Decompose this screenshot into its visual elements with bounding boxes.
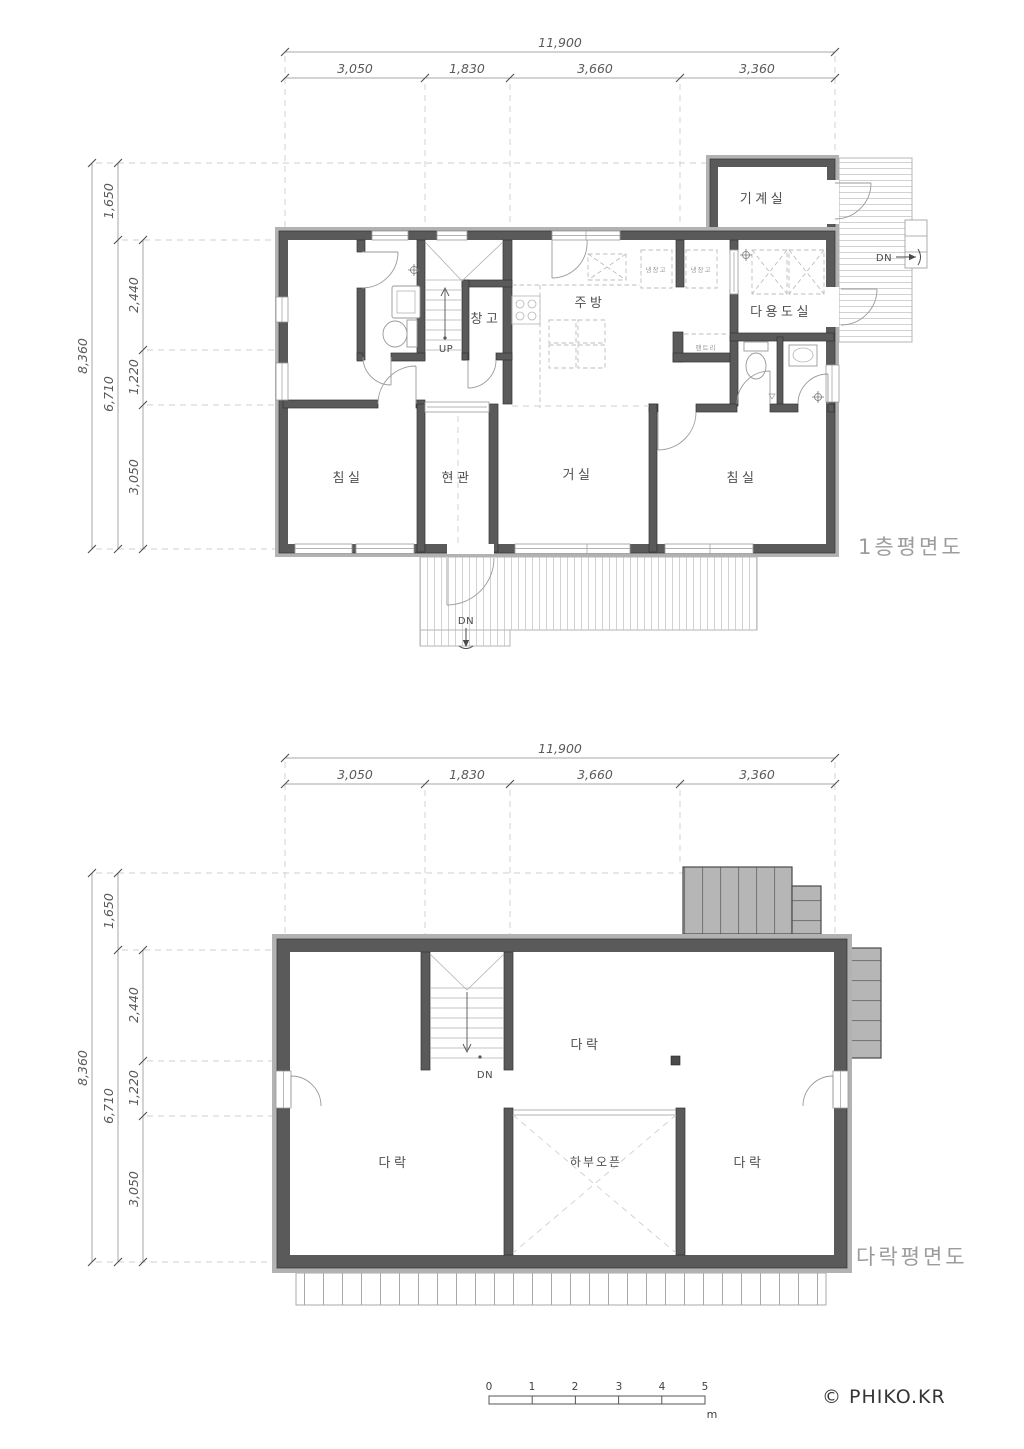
dim-left-upper-attic: 1,650 xyxy=(101,893,116,929)
attic-center-label: 다락 xyxy=(571,1038,602,1053)
floorplan-drawing: DN DN 기계실 xyxy=(0,0,1024,1449)
kitchen-label: 주방 xyxy=(575,296,606,311)
dim-total-width-attic: 11,900 xyxy=(538,741,582,756)
dim-left-attic-1: 1,220 xyxy=(126,1070,141,1106)
fridge-right-label: 냉장고 xyxy=(691,265,712,274)
dimensions-left-f1: 8,360 1,650 6,710 2,440 1,220 3,050 xyxy=(75,159,147,553)
stair-up-label: UP xyxy=(439,344,453,355)
porch-down-label: DN xyxy=(458,616,474,627)
credit-label: © PHIKO.KR xyxy=(822,1386,946,1408)
dim-seg-f1-3: 3,360 xyxy=(739,61,775,76)
attic-title: 다락평면도 xyxy=(856,1245,968,1269)
dim-seg-attic-3: 3,360 xyxy=(739,767,775,782)
scale-tick-0: 0 xyxy=(486,1381,493,1393)
dim-seg-attic-2: 3,660 xyxy=(577,767,613,782)
living-room-label: 거실 xyxy=(563,468,594,483)
open-below-label: 하부오픈 xyxy=(570,1155,622,1169)
dim-seg-attic-1: 1,830 xyxy=(449,767,485,782)
entrance-label: 현관 xyxy=(442,471,473,486)
dim-left-mid-f1: 6,710 xyxy=(101,376,116,412)
scale-unit-label: m xyxy=(707,1408,718,1421)
drawing-sheet: DN DN 기계실 xyxy=(0,0,1024,1449)
dim-left-attic-0: 2,440 xyxy=(126,987,141,1023)
stair-down-label: DN xyxy=(477,1070,493,1081)
building-shell-attic xyxy=(272,934,852,1273)
deck-right: DN xyxy=(839,158,927,342)
scale-tick-2: 2 xyxy=(572,1381,579,1393)
dim-seg-f1-1: 1,830 xyxy=(449,61,485,76)
dim-left-upper-f1: 1,650 xyxy=(101,183,116,219)
column-marker xyxy=(671,1056,680,1065)
storage-label: 창고 xyxy=(471,312,502,327)
scale-tick-4: 4 xyxy=(659,1381,666,1393)
dim-total-height-f1: 8,360 xyxy=(75,338,90,374)
dim-total-height-attic: 8,360 xyxy=(75,1050,90,1086)
scale-tick-5: 5 xyxy=(702,1381,709,1393)
attic-plan: DN 하부오픈 다락 다락 다락 11,900 xyxy=(75,741,968,1305)
bedroom-left-label: 침실 xyxy=(333,471,364,486)
attic-right-label: 다락 xyxy=(734,1156,765,1171)
machine-room-label: 기계실 xyxy=(740,192,786,207)
pantry-label: 팬트리 xyxy=(696,343,717,352)
dim-left-f1-2: 3,050 xyxy=(126,459,141,495)
toilet-left-bowl xyxy=(383,321,407,347)
dim-total-width-f1: 11,900 xyxy=(538,35,582,50)
fridge-left-label: 냉장고 xyxy=(646,265,667,274)
first-floor-plan: DN DN 기계실 xyxy=(75,35,964,649)
dim-seg-f1-2: 3,660 xyxy=(577,61,613,76)
bedroom-right-label: 침실 xyxy=(727,471,758,486)
dimensions-left-attic: 8,360 1,650 6,710 2,440 1,220 3,050 xyxy=(75,869,147,1266)
scale-tick-1: 1 xyxy=(529,1381,536,1393)
first-floor-title: 1층평면도 xyxy=(858,535,964,559)
dim-left-attic-2: 3,050 xyxy=(126,1171,141,1207)
toilet-right-tank xyxy=(744,342,768,351)
porch-front: DN xyxy=(420,557,757,649)
dimensions-top-f1: 11,900 3,050 1,830 3,660 3,360 xyxy=(281,35,839,82)
dim-left-f1-1: 1,220 xyxy=(126,359,141,395)
dim-seg-f1-0: 3,050 xyxy=(337,61,373,76)
scale-bar: 0 1 2 3 4 5 m xyxy=(486,1381,718,1421)
attic-left-label: 다락 xyxy=(379,1156,410,1171)
scale-tick-3: 3 xyxy=(616,1381,623,1393)
toilet-right-bowl xyxy=(746,353,766,379)
dim-left-f1-0: 2,440 xyxy=(126,277,141,313)
dimensions-top-attic: 11,900 3,050 1,830 3,660 3,360 xyxy=(281,741,839,788)
dim-seg-attic-0: 3,050 xyxy=(337,767,373,782)
deck-down-label: DN xyxy=(876,253,892,264)
toilet-left-tank xyxy=(407,320,417,347)
dim-left-mid-attic: 6,710 xyxy=(101,1088,116,1124)
roof-strip-bottom xyxy=(296,1273,826,1305)
building-shell-f1 xyxy=(275,227,839,557)
utility-room-label: 다용도실 xyxy=(750,305,812,320)
